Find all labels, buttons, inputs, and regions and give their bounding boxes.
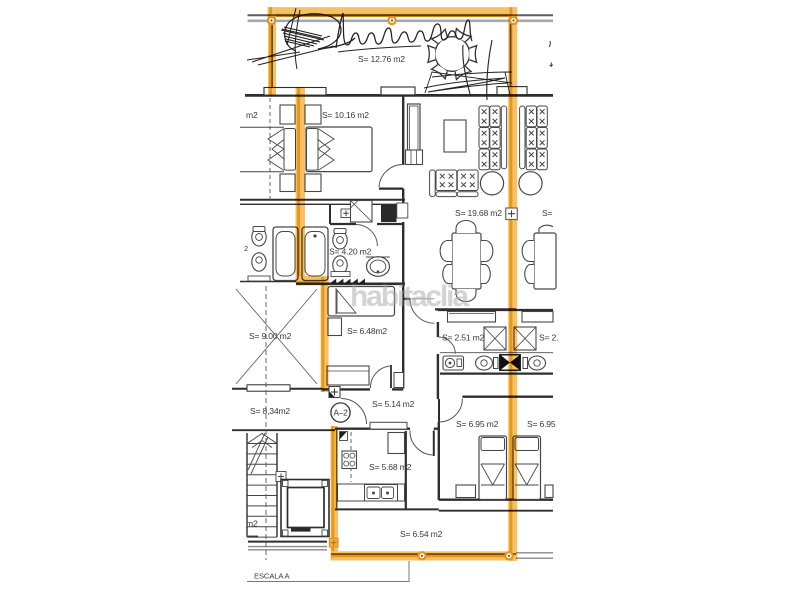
svg-text:S= 6.54 m2: S= 6.54 m2	[400, 529, 443, 539]
svg-text:2: 2	[244, 244, 248, 253]
svg-text:S= 8,34m2: S= 8,34m2	[250, 406, 290, 416]
svg-text:S= 6.95 m2: S= 6.95 m2	[456, 419, 499, 429]
svg-text:m2: m2	[246, 519, 258, 529]
svg-text:S= 5.14 m2: S= 5.14 m2	[372, 399, 415, 409]
svg-text:S= 12.76 m2: S= 12.76 m2	[358, 54, 405, 64]
svg-text:S= 6.95: S= 6.95	[527, 419, 556, 429]
svg-text:A–2: A–2	[334, 409, 349, 418]
svg-text:S= 9.00 m2: S= 9.00 m2	[249, 331, 292, 341]
svg-text:S= 4.20 m2: S= 4.20 m2	[329, 247, 372, 257]
svg-text:S= 6.48m2: S= 6.48m2	[347, 326, 387, 336]
svg-text:m2: m2	[246, 110, 258, 120]
svg-text:S=: S=	[542, 208, 553, 218]
svg-text:S= 2.: S= 2.	[539, 333, 558, 343]
svg-text:S= 5.68 m2: S= 5.68 m2	[369, 462, 412, 472]
svg-text:S= 10.16 m2: S= 10.16 m2	[322, 110, 369, 120]
svg-text:S= 2.51 m2: S= 2.51 m2	[442, 333, 485, 343]
svg-text:ESCALA A: ESCALA A	[254, 572, 291, 581]
svg-text:habitaclia: habitaclia	[350, 280, 469, 313]
svg-text:S= 19.68 m2: S= 19.68 m2	[455, 208, 502, 218]
